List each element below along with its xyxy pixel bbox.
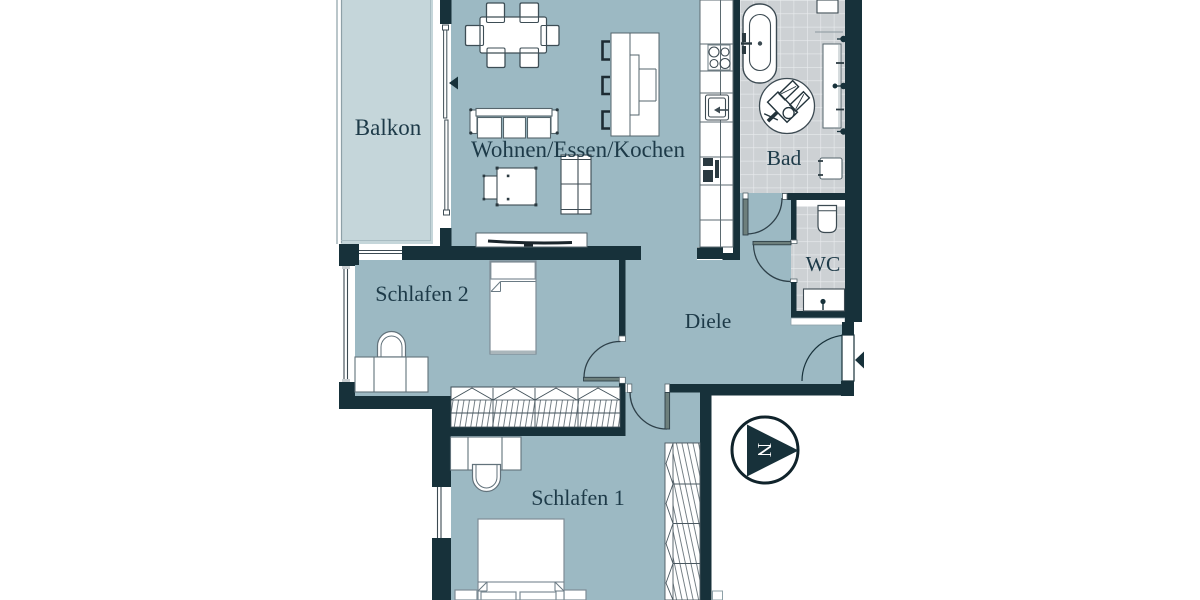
- svg-text:Balkon: Balkon: [355, 115, 422, 140]
- svg-text:Bad: Bad: [767, 146, 802, 170]
- svg-text:Schlafen 1: Schlafen 1: [531, 485, 624, 510]
- svg-text:Diele: Diele: [685, 309, 732, 333]
- svg-text:Wohnen/Essen/Kochen: Wohnen/Essen/Kochen: [471, 137, 686, 162]
- svg-text:WC: WC: [806, 252, 841, 276]
- svg-text:N: N: [753, 443, 775, 457]
- svg-text:Schlafen 2: Schlafen 2: [375, 281, 468, 306]
